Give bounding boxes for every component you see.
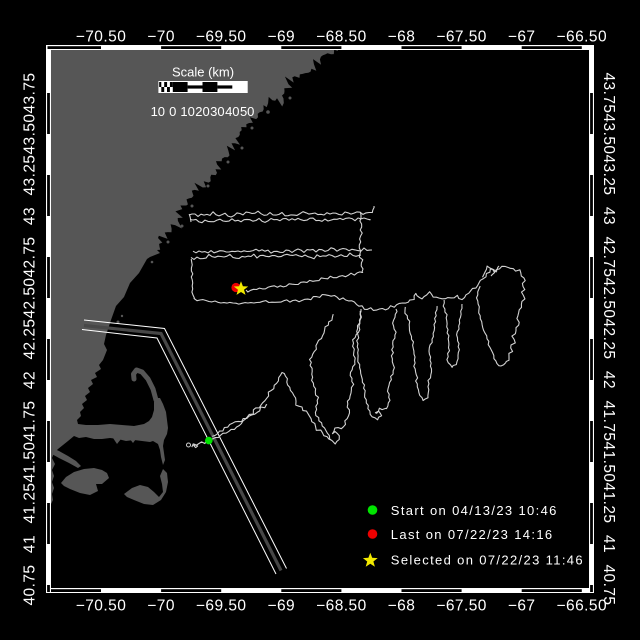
svg-text:−67.50: −67.50 — [436, 29, 487, 46]
svg-text:43.25: 43.25 — [22, 154, 39, 195]
svg-text:Last on 07/22/23 14:16: Last on 07/22/23 14:16 — [391, 527, 554, 542]
svg-text:43.25: 43.25 — [600, 154, 617, 195]
svg-text:43: 43 — [600, 207, 617, 225]
svg-text:−69.50: −69.50 — [196, 29, 247, 46]
svg-text:41.25: 41.25 — [600, 482, 617, 523]
svg-text:40: 40 — [225, 104, 239, 119]
svg-text:−68.50: −68.50 — [316, 29, 367, 46]
svg-text:−67.50: −67.50 — [436, 598, 487, 615]
svg-text:42.75: 42.75 — [600, 236, 617, 277]
svg-text:30: 30 — [210, 104, 224, 119]
svg-text:10: 10 — [180, 104, 194, 119]
svg-text:43.75: 43.75 — [22, 72, 39, 113]
svg-text:Scale (km): Scale (km) — [172, 65, 234, 80]
svg-text:−69: −69 — [267, 29, 295, 46]
svg-text:42: 42 — [600, 371, 617, 389]
svg-text:−66.50: −66.50 — [557, 598, 608, 615]
svg-text:−68: −68 — [388, 29, 416, 46]
svg-text:43: 43 — [22, 207, 39, 225]
svg-text:42.25: 42.25 — [22, 318, 39, 359]
svg-text:−68: −68 — [388, 598, 416, 615]
svg-text:41.75: 41.75 — [22, 400, 39, 441]
svg-text:−66.50: −66.50 — [557, 29, 608, 46]
svg-text:20: 20 — [195, 104, 209, 119]
svg-text:−69.50: −69.50 — [196, 598, 247, 615]
svg-text:42.50: 42.50 — [600, 277, 617, 318]
svg-text:−70: −70 — [147, 598, 175, 615]
svg-text:42.50: 42.50 — [22, 277, 39, 318]
svg-text:41.50: 41.50 — [600, 441, 617, 482]
svg-text:40.75: 40.75 — [22, 564, 39, 605]
svg-text:42.75: 42.75 — [22, 236, 39, 277]
svg-text:41: 41 — [22, 535, 39, 553]
svg-text:Start on 04/13/23 10:46: Start on 04/13/23 10:46 — [391, 503, 558, 518]
svg-text:41.75: 41.75 — [600, 400, 617, 441]
svg-text:−70: −70 — [147, 29, 175, 46]
svg-text:43.50: 43.50 — [22, 113, 39, 154]
svg-text:42: 42 — [22, 371, 39, 389]
svg-text:41: 41 — [600, 535, 617, 553]
svg-text:10: 10 — [151, 104, 165, 119]
svg-text:42.25: 42.25 — [600, 318, 617, 359]
svg-text:43.50: 43.50 — [600, 113, 617, 154]
svg-text:40.75: 40.75 — [600, 564, 617, 605]
svg-text:41.50: 41.50 — [22, 441, 39, 482]
svg-text:−67: −67 — [508, 29, 536, 46]
svg-text:43.75: 43.75 — [600, 72, 617, 113]
svg-text:41.25: 41.25 — [22, 482, 39, 523]
svg-text:−68.50: −68.50 — [316, 598, 367, 615]
svg-text:−69: −69 — [267, 598, 295, 615]
svg-text:−70.50: −70.50 — [76, 598, 127, 615]
svg-text:Selected on 07/22/23 11:46: Selected on 07/22/23 11:46 — [391, 553, 584, 568]
svg-text:0: 0 — [169, 104, 176, 119]
svg-text:50: 50 — [240, 104, 254, 119]
svg-text:−67: −67 — [508, 598, 536, 615]
svg-text:−70.50: −70.50 — [76, 29, 127, 46]
